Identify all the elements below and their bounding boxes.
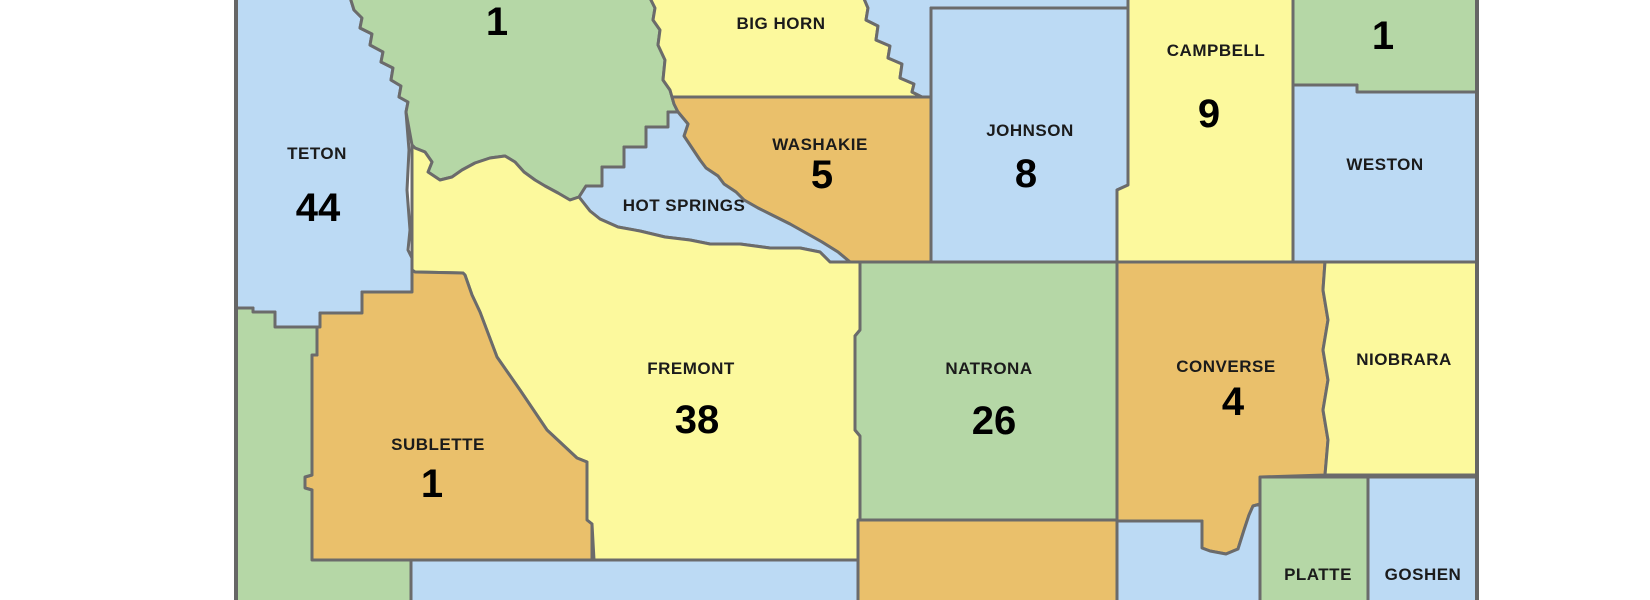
county-goshen-label: GOSHEN (1385, 565, 1462, 584)
county-fremont-value: 38 (675, 398, 720, 442)
county-weston-label: WESTON (1346, 155, 1423, 174)
county-johnson: JOHNSON 8 (931, 8, 1128, 262)
county-converse-value: 4 (1222, 380, 1245, 424)
county-campbell-label: CAMPBELL (1167, 41, 1265, 60)
county-johnson-label: JOHNSON (986, 121, 1074, 140)
county-teton-value: 44 (296, 186, 341, 230)
county-crook-value: 1 (1372, 14, 1394, 58)
county-weston: WESTON (1293, 85, 1477, 262)
county-niobrara: NIOBRARA (1323, 262, 1477, 475)
county-natrona-value: 26 (972, 399, 1017, 443)
county-fremont-label: FREMONT (647, 359, 735, 378)
county-park-value: 1 (486, 0, 508, 44)
county-natrona: NATRONA 26 (855, 262, 1117, 520)
county-johnson-value: 8 (1015, 152, 1037, 196)
county-teton-label: TETON (287, 144, 347, 163)
county-sweetwater-shape (411, 560, 858, 600)
county-carbon-shape (858, 520, 1117, 600)
county-crook: 1 (1293, 0, 1477, 92)
wyoming-county-map: TETON 44 1 BIG HORN JOHNSON 8 CAMPBELL 9… (0, 0, 1650, 600)
county-converse-label: CONVERSE (1176, 357, 1275, 376)
county-sublette-value: 1 (421, 462, 443, 506)
county-sweetwater (411, 560, 858, 600)
county-platte: PLATTE (1260, 477, 1368, 600)
county-carbon (858, 520, 1117, 600)
county-campbell-value: 9 (1198, 92, 1220, 136)
county-natrona-shape (855, 262, 1117, 520)
county-goshen: GOSHEN (1368, 477, 1477, 600)
county-niobrara-label: NIOBRARA (1356, 350, 1452, 369)
county-platte-label: PLATTE (1284, 565, 1352, 584)
map-canvas: TETON 44 1 BIG HORN JOHNSON 8 CAMPBELL 9… (0, 0, 1650, 600)
county-washakie-label: WASHAKIE (772, 135, 868, 154)
county-washakie-value: 5 (811, 153, 833, 197)
county-hot-springs-label: HOT SPRINGS (623, 196, 746, 215)
county-big-horn-label: BIG HORN (737, 14, 826, 33)
county-sublette-label: SUBLETTE (391, 435, 485, 454)
county-campbell: CAMPBELL 9 (1117, 0, 1293, 262)
county-natrona-label: NATRONA (945, 359, 1032, 378)
